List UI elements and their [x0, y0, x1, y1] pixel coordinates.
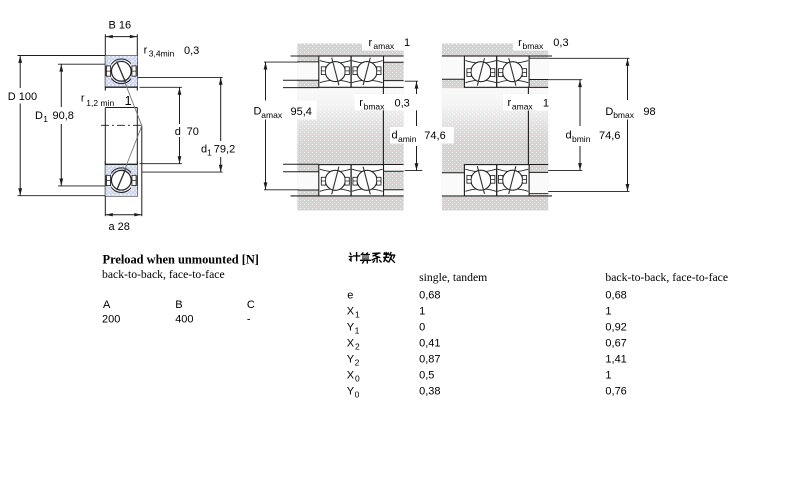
svg-text:d: d — [392, 130, 398, 142]
svg-text:Y: Y — [347, 321, 355, 333]
svg-text:Y: Y — [347, 353, 355, 365]
svg-text:0: 0 — [355, 373, 360, 383]
svg-text:X: X — [347, 369, 355, 381]
svg-text:Preload when unmounted [N]: Preload when unmounted [N] — [103, 253, 259, 267]
svg-text:2: 2 — [355, 341, 360, 351]
svg-text:B 16: B 16 — [109, 20, 132, 32]
svg-text:amax: amax — [373, 41, 395, 51]
svg-text:D: D — [35, 110, 43, 122]
svg-text:1,2 min: 1,2 min — [86, 98, 114, 108]
svg-text:C: C — [247, 299, 255, 311]
svg-text:0,76: 0,76 — [605, 385, 626, 397]
svg-text:bmax: bmax — [613, 110, 635, 120]
svg-text:A: A — [103, 299, 111, 311]
svg-text:0,67: 0,67 — [605, 337, 626, 349]
svg-text:r: r — [518, 37, 522, 49]
svg-text:79,2: 79,2 — [214, 144, 235, 156]
svg-text:74,6: 74,6 — [424, 130, 445, 142]
svg-text:-: - — [247, 313, 251, 325]
svg-text:D: D — [605, 106, 613, 118]
svg-text:200: 200 — [102, 313, 120, 325]
svg-text:400: 400 — [175, 313, 193, 325]
svg-text:back-to-back, face-to-face: back-to-back, face-to-face — [605, 271, 728, 284]
svg-text:3,4min: 3,4min — [149, 49, 175, 59]
svg-text:74,6: 74,6 — [599, 130, 620, 142]
svg-text:0,3: 0,3 — [553, 37, 568, 49]
svg-text:1: 1 — [43, 114, 48, 124]
svg-text:r: r — [369, 37, 373, 49]
svg-text:r: r — [144, 44, 148, 56]
svg-text:e: e — [347, 289, 353, 301]
svg-text:1: 1 — [543, 97, 549, 109]
svg-text:0: 0 — [355, 389, 360, 399]
svg-text:1: 1 — [355, 325, 360, 335]
svg-text:1: 1 — [605, 305, 611, 317]
svg-text:98: 98 — [643, 106, 655, 118]
svg-text:1: 1 — [207, 148, 212, 158]
svg-text:90,8: 90,8 — [53, 110, 74, 122]
svg-text:X: X — [347, 337, 355, 349]
svg-text:0: 0 — [419, 321, 425, 333]
svg-text:70: 70 — [187, 126, 199, 138]
svg-text:amax: amax — [512, 101, 534, 111]
svg-text:B: B — [175, 299, 182, 311]
svg-text:0,3: 0,3 — [395, 97, 410, 109]
svg-text:1: 1 — [605, 369, 611, 381]
svg-text:d: d — [566, 130, 572, 142]
svg-text:d: d — [175, 126, 181, 138]
svg-text:0,87: 0,87 — [419, 353, 440, 365]
svg-text:X: X — [347, 305, 355, 317]
svg-text:bmax: bmax — [523, 41, 545, 51]
svg-text:1: 1 — [404, 37, 410, 49]
svg-text:single, tandem: single, tandem — [419, 271, 487, 284]
svg-text:r: r — [508, 97, 512, 109]
svg-text:0,38: 0,38 — [419, 385, 440, 397]
svg-text:r: r — [359, 97, 363, 109]
svg-text:amax: amax — [261, 110, 283, 120]
svg-text:2: 2 — [355, 357, 360, 367]
svg-text:Y: Y — [347, 385, 355, 397]
svg-text:amin: amin — [398, 134, 417, 144]
svg-text:D: D — [254, 106, 262, 118]
svg-text:0,41: 0,41 — [419, 337, 440, 349]
svg-text:D 100: D 100 — [8, 91, 37, 103]
svg-text:back-to-back, face-to-face: back-to-back, face-to-face — [102, 268, 225, 281]
svg-text:bmax: bmax — [364, 101, 386, 111]
svg-text:1: 1 — [355, 309, 360, 319]
svg-text:bmin: bmin — [572, 134, 591, 144]
svg-text:0,68: 0,68 — [419, 289, 440, 301]
svg-text:0,68: 0,68 — [605, 289, 626, 301]
svg-text:a 28: a 28 — [109, 221, 130, 233]
svg-text:1: 1 — [419, 305, 425, 317]
svg-text:0,92: 0,92 — [605, 321, 626, 333]
svg-text:95,4: 95,4 — [291, 106, 312, 118]
svg-text:0,3: 0,3 — [184, 45, 199, 57]
svg-text:0,5: 0,5 — [419, 369, 434, 381]
svg-text:r: r — [81, 92, 85, 104]
svg-text:1,41: 1,41 — [605, 353, 626, 365]
